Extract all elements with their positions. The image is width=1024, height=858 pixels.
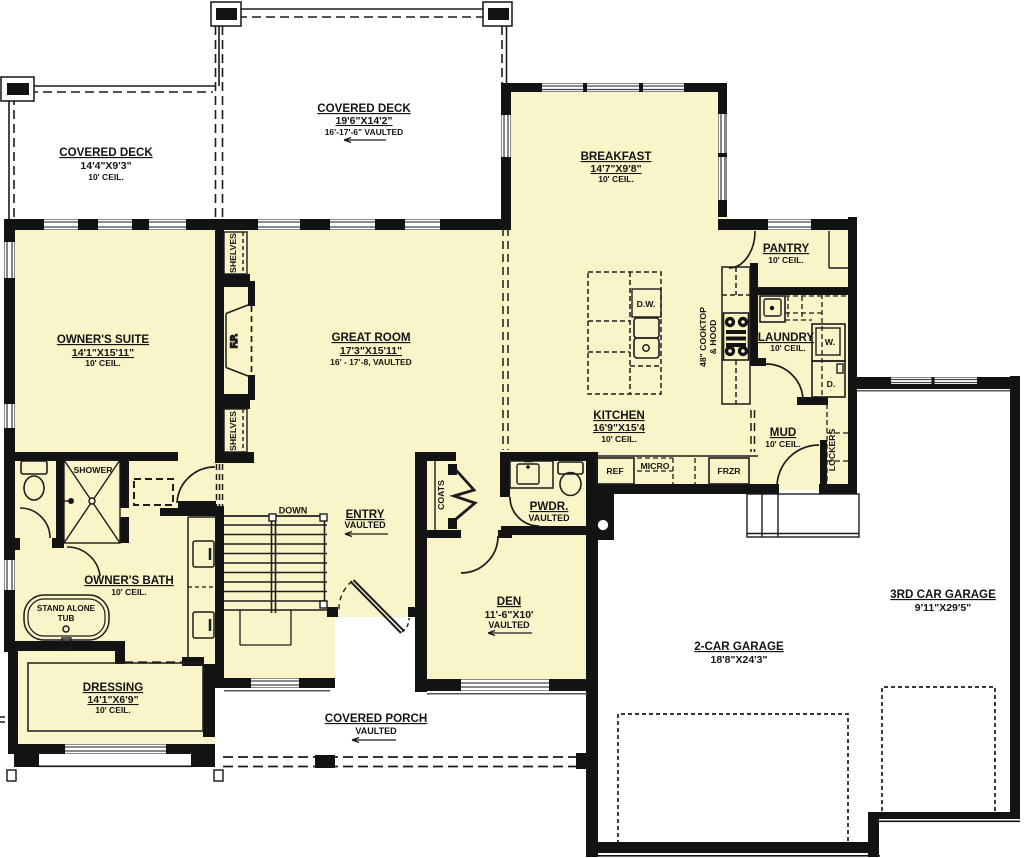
svg-text:COVERED DECK: COVERED DECK: [59, 146, 153, 159]
svg-text:3RD CAR GARAGE: 3RD CAR GARAGE: [890, 588, 996, 601]
svg-text:D.: D.: [827, 379, 836, 389]
svg-text:STAND ALONE: STAND ALONE: [37, 604, 96, 613]
svg-text:16' - 17'-8, VAULTED: 16' - 17'-8, VAULTED: [330, 357, 412, 367]
svg-text:10' CEIL.: 10' CEIL.: [768, 255, 804, 265]
svg-text:DEN: DEN: [497, 595, 521, 608]
svg-text:REF: REF: [606, 466, 623, 476]
svg-text:F.P.: F.P.: [229, 334, 239, 348]
svg-text:BREAKFAST: BREAKFAST: [581, 150, 652, 163]
svg-text:DRESSING: DRESSING: [83, 681, 144, 694]
svg-text:14'4"X9'3": 14'4"X9'3": [80, 160, 131, 172]
svg-text:COVERED PORCH: COVERED PORCH: [325, 712, 427, 725]
svg-text:16'9"X15'4: 16'9"X15'4: [593, 422, 645, 434]
svg-text:W.: W.: [825, 337, 835, 347]
svg-text:& HOOD: & HOOD: [708, 320, 718, 355]
svg-text:48" COOKTOP: 48" COOKTOP: [698, 307, 708, 367]
svg-text:COVERED DECK: COVERED DECK: [317, 102, 411, 115]
svg-text:VAULTED: VAULTED: [355, 726, 397, 736]
svg-text:10' CEIL.: 10' CEIL.: [765, 439, 801, 449]
svg-text:10' CEIL.: 10' CEIL.: [770, 343, 806, 353]
svg-text:SHOWER: SHOWER: [73, 465, 113, 475]
svg-text:MICRO: MICRO: [641, 461, 670, 471]
svg-text:2-CAR GARAGE: 2-CAR GARAGE: [694, 640, 784, 653]
svg-text:VAULTED: VAULTED: [528, 513, 570, 523]
svg-text:SHELVES: SHELVES: [228, 233, 238, 273]
svg-text:10' CEIL.: 10' CEIL.: [88, 172, 124, 182]
svg-text:9'11"X29'5": 9'11"X29'5": [915, 602, 971, 614]
svg-text:OWNER'S BATH: OWNER'S BATH: [84, 574, 174, 587]
svg-text:10' CEIL.: 10' CEIL.: [601, 434, 637, 444]
svg-text:MUD: MUD: [770, 426, 796, 439]
svg-text:DOWN: DOWN: [279, 506, 308, 516]
svg-text:18'8"X24'3": 18'8"X24'3": [711, 654, 768, 666]
svg-text:VAULTED: VAULTED: [488, 620, 530, 630]
svg-text:VAULTED: VAULTED: [344, 520, 386, 530]
svg-text:KITCHEN: KITCHEN: [593, 409, 645, 422]
svg-text:10' CEIL.: 10' CEIL.: [111, 587, 147, 597]
svg-text:PANTRY: PANTRY: [763, 242, 810, 255]
svg-text:10' CEIL.: 10' CEIL.: [598, 174, 634, 184]
svg-text:TUB: TUB: [58, 614, 75, 623]
svg-text:10' CEIL.: 10' CEIL.: [85, 358, 121, 368]
svg-text:PWDR.: PWDR.: [530, 500, 569, 513]
svg-text:D.W.: D.W.: [637, 299, 656, 309]
svg-text:16'-17'-6" VAULTED: 16'-17'-6" VAULTED: [325, 127, 404, 137]
svg-text:10' CEIL.: 10' CEIL.: [95, 705, 131, 715]
svg-text:LOCKERS: LOCKERS: [827, 429, 837, 472]
svg-text:19'6"X14'2": 19'6"X14'2": [336, 115, 393, 127]
svg-text:17'3"X15'11": 17'3"X15'11": [340, 345, 402, 357]
svg-text:FRZR: FRZR: [717, 466, 741, 476]
svg-text:COATS: COATS: [436, 480, 446, 510]
svg-text:SHELVES: SHELVES: [228, 411, 238, 451]
svg-text:GREAT ROOM: GREAT ROOM: [331, 331, 410, 344]
svg-text:OWNER'S SUITE: OWNER'S SUITE: [57, 333, 150, 346]
